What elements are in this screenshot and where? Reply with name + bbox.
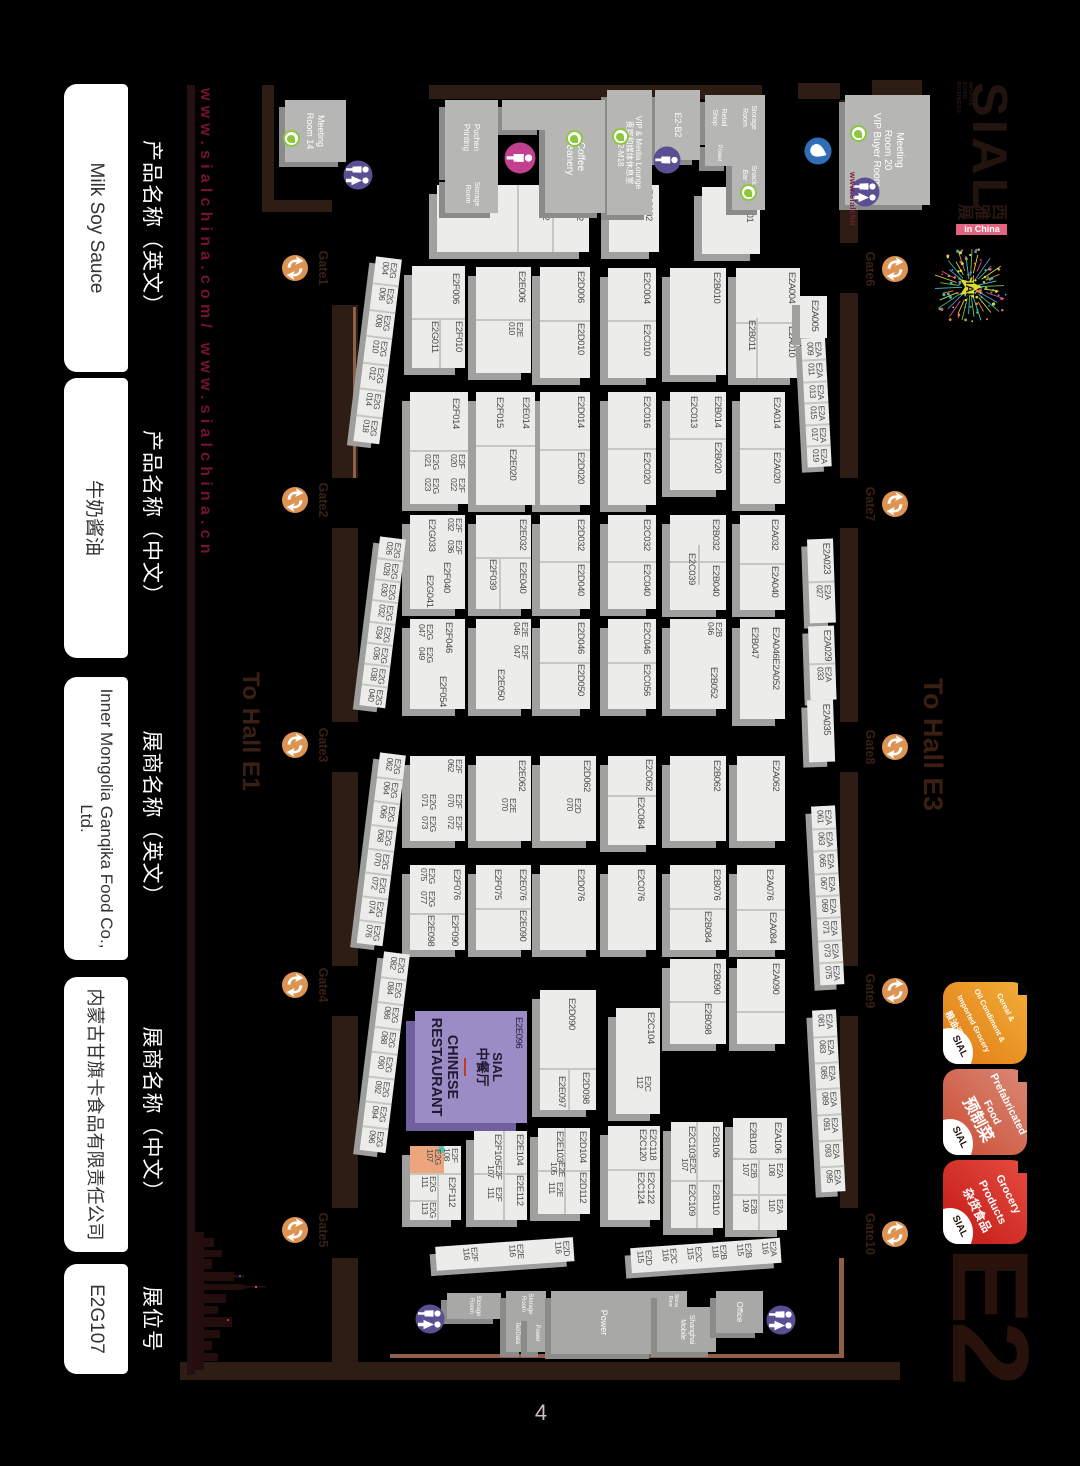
svg-text:SIAL: SIAL (963, 274, 975, 299)
